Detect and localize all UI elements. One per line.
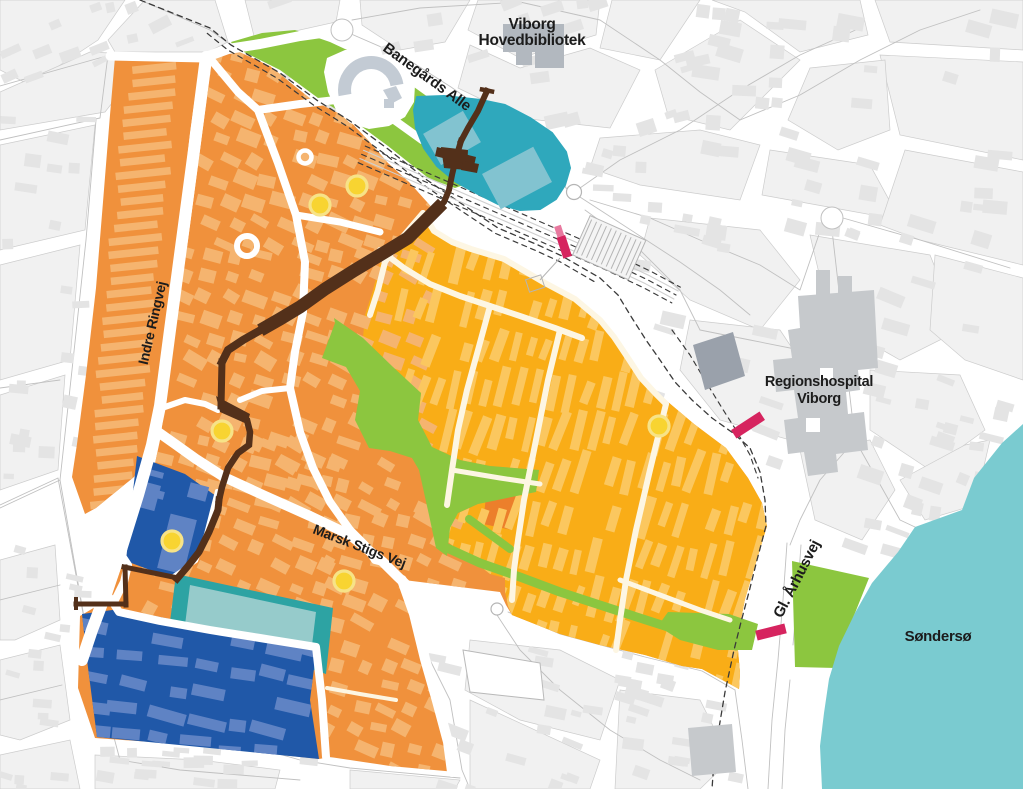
svg-text:Viborg: Viborg	[797, 391, 841, 407]
svg-text:Hovedbibliotek: Hovedbibliotek	[479, 32, 587, 49]
svg-text:Regionshospital: Regionshospital	[765, 374, 873, 390]
svg-text:Viborg: Viborg	[508, 16, 555, 33]
svg-text:Søndersø: Søndersø	[905, 628, 973, 645]
